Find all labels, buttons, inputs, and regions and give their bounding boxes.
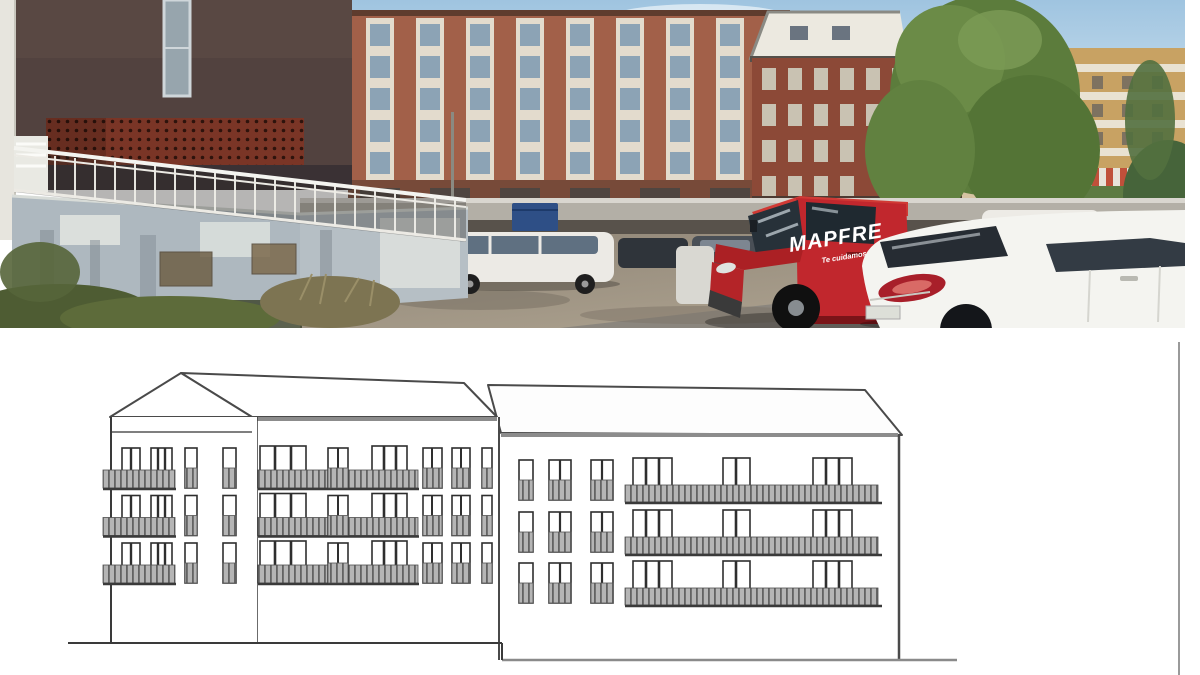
site-photo-art: MAPFRE Te cuidamos <box>0 0 1185 328</box>
composite-figure: MAPFRE Te cuidamos <box>0 0 1200 675</box>
elevation-block-right <box>488 385 957 660</box>
site-photo: MAPFRE Te cuidamos <box>0 0 1185 328</box>
side-windows <box>1046 238 1185 272</box>
license-plate <box>866 306 900 319</box>
blue-dumpster <box>512 203 558 231</box>
white-car-behind <box>676 246 714 304</box>
elevation-art <box>0 328 1200 675</box>
elevation-drawing <box>0 328 1200 675</box>
apartment-building-left <box>348 10 790 218</box>
